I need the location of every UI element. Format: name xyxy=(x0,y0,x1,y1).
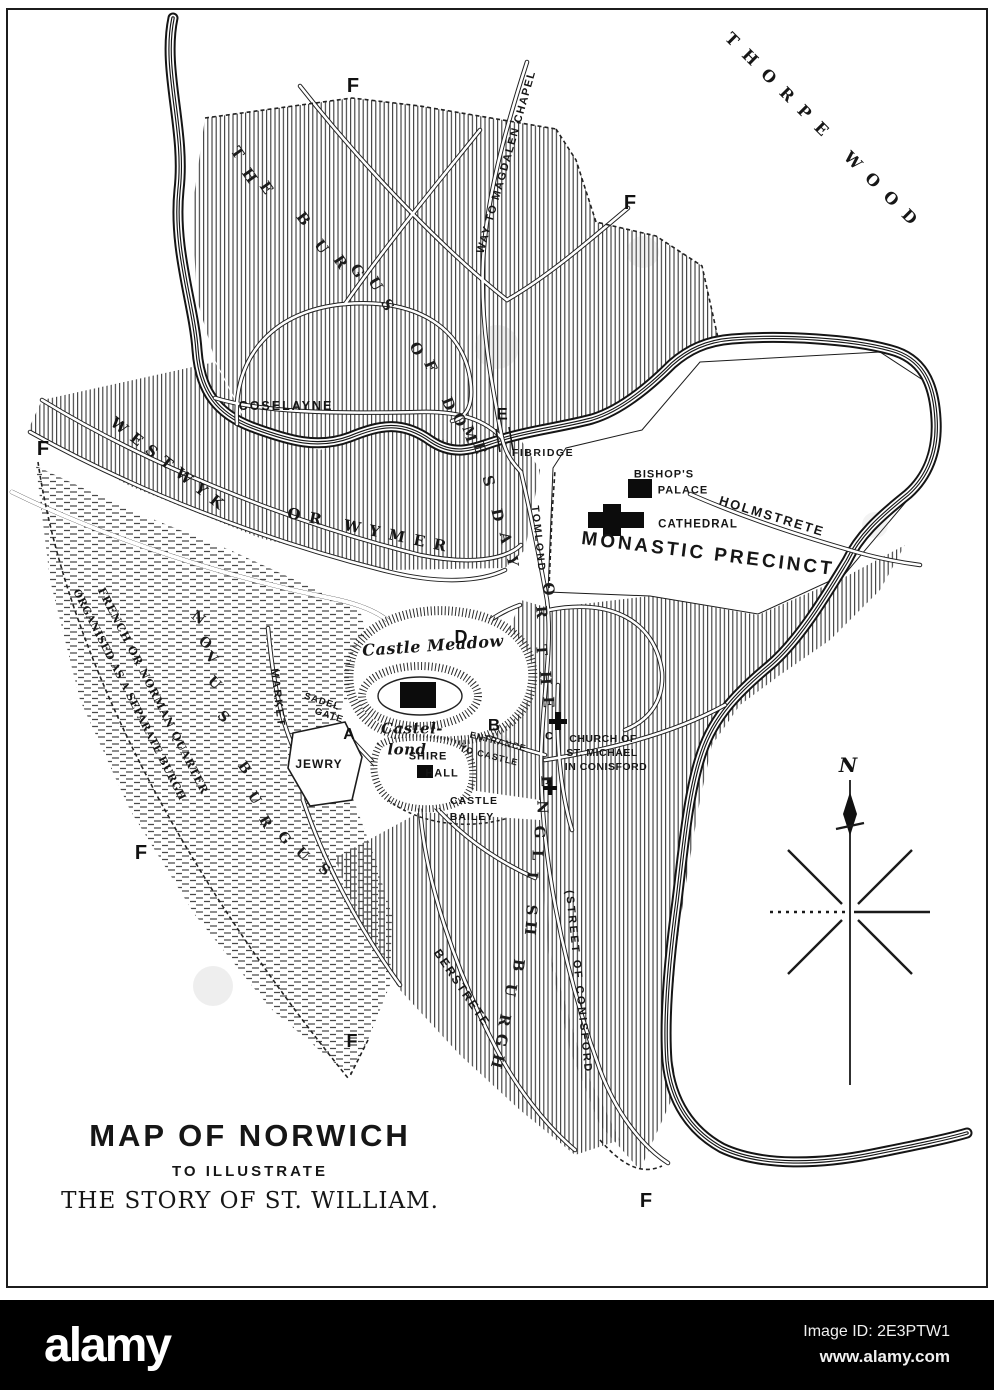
letter-burgus-1: T xyxy=(228,144,247,162)
label-marker-e-fibridge: E xyxy=(496,406,507,423)
alamy-logo: alamy xyxy=(44,1318,170,1373)
letter-novus-10: U xyxy=(293,845,312,864)
label-sadelgate-2: GATE xyxy=(313,707,344,725)
title-block: MAP OF NORWICH TO ILLUSTRATE THE STORY O… xyxy=(60,1118,440,1214)
label-marker-d-castle-meadow: D xyxy=(455,628,468,646)
letter-burgus-7: G xyxy=(347,262,367,281)
label-castel-lond-1: Castel- xyxy=(381,722,443,737)
letter-burgus-12: D xyxy=(439,395,458,413)
map-of-norwich: THORPE WOODWAY TO MAGDALEN CHAPELCOSELAY… xyxy=(0,0,994,1300)
watermark-info: Image ID: 2E3PTW1 www.alamy.com xyxy=(803,1323,950,1367)
letter-burgus-35: G xyxy=(492,1032,510,1048)
label-holmstrete: HOLMSTRETE xyxy=(718,494,827,538)
letter-burgus-8: U xyxy=(365,275,385,294)
label-shire-hall-1: SHIRE xyxy=(409,752,448,763)
letter-burgus-20: O xyxy=(540,582,556,597)
letter-burgus-27: G xyxy=(532,826,547,839)
label-fibridge: FIBRIDGE xyxy=(512,448,574,459)
label-marker-f-northwest: F xyxy=(347,76,359,96)
label-westwyk: WESTWYK xyxy=(108,415,233,517)
label-tomlond: TOMLOND xyxy=(529,505,546,573)
letter-burgus-31: H xyxy=(522,920,538,936)
label-marker-b-castle-entrance: B xyxy=(488,717,500,734)
letter-novus-8: R xyxy=(256,813,274,830)
letter-burgus-36: H xyxy=(488,1052,506,1070)
label-cathedral: CATHEDRAL xyxy=(658,519,738,531)
map-subtitle: TO ILLUSTRATE xyxy=(60,1163,440,1180)
label-bishops-palace-1: BISHOP'S xyxy=(634,470,694,481)
label-monastic-precinct: MONASTIC PRECINCT xyxy=(580,529,835,579)
letter-burgus-4: B xyxy=(293,209,313,228)
letter-burgus-2: H xyxy=(239,166,259,186)
letter-burgus-33: U xyxy=(501,982,518,997)
map-subtitle-2: THE STORY OF ST. WILLIAM. xyxy=(60,1188,440,1214)
letter-burgus-5: U xyxy=(311,237,331,256)
label-street-of-conisford: (STREET OF CONISFORD xyxy=(563,890,593,1075)
letter-burgus-18: A xyxy=(497,531,514,545)
label-market: MARKET xyxy=(268,668,286,728)
letter-burgus-10: O xyxy=(406,340,425,358)
letter-novus-6: B xyxy=(235,759,253,777)
letter-burgus-23: H xyxy=(537,671,553,686)
letter-burgus-19: Y xyxy=(504,555,520,568)
screenshot-canvas: THORPE WOODWAY TO MAGDALEN CHAPELCOSELAY… xyxy=(0,0,994,1390)
label-bishops-palace-2: PALACE xyxy=(658,486,708,497)
label-marker-f-west: F xyxy=(37,439,49,459)
letter-novus-5: S xyxy=(214,708,231,725)
label-marker-f-southeast: F xyxy=(640,1191,652,1211)
compass-north-label: N xyxy=(839,755,857,775)
label-church-st-michael-2: ST. MICHAEL xyxy=(566,748,637,759)
label-french-quarter-2: ORGANISED AS A SEPARATE BURGH xyxy=(71,588,187,803)
letter-burgus-29: I xyxy=(524,871,539,879)
letter-burgus-17: D xyxy=(488,507,505,523)
label-castle-meadow: Castle Meadow xyxy=(362,633,504,659)
letter-burgus-22: T xyxy=(533,644,549,656)
label-church-st-michael-1: CHURCH OF xyxy=(569,734,637,745)
label-way-to-magdalen-chapel: WAY TO MAGDALEN CHAPEL xyxy=(476,69,539,255)
watermark-bar: alamy Image ID: 2E3PTW1 www.alamy.com xyxy=(0,1300,994,1390)
labels-layer: THORPE WOODWAY TO MAGDALEN CHAPELCOSELAY… xyxy=(0,0,994,1300)
letter-burgus-11: F xyxy=(421,358,439,374)
label-marker-f-northeast: F xyxy=(624,193,636,213)
image-id-text: Image ID: 2E3PTW1 xyxy=(803,1323,950,1341)
letter-burgus-25: E xyxy=(538,775,553,787)
letter-burgus-21: R xyxy=(533,605,549,619)
label-coselayne: COSELAYNE xyxy=(239,400,334,413)
label-marker-c-church: C xyxy=(545,732,553,743)
label-marker-f-south: F xyxy=(347,1032,358,1050)
map-title: MAP OF NORWICH xyxy=(60,1118,440,1154)
letter-burgus-14: M xyxy=(459,424,478,444)
label-jewry: JEWRY xyxy=(295,758,342,770)
label-marker-a-sadelgate: A xyxy=(343,727,355,743)
letter-novus-1: N xyxy=(189,609,208,628)
letter-burgus-9: S xyxy=(378,297,396,314)
label-thorpe-wood: THORPE WOOD xyxy=(722,30,928,236)
letter-burgus-3: E xyxy=(257,179,276,197)
label-shire-hall-2: HALL xyxy=(425,769,458,780)
letter-burgus-32: B xyxy=(510,958,527,973)
alamy-url-text: www.alamy.com xyxy=(803,1347,950,1367)
label-marker-f-southwest: F xyxy=(135,843,147,863)
letter-burgus-34: R xyxy=(495,1012,512,1027)
letter-burgus-24: E xyxy=(540,696,555,708)
label-castle-bailey-1: CASTLE xyxy=(450,796,498,807)
label-berstrete: BERSTRETE xyxy=(432,947,493,1029)
letter-burgus-26: N xyxy=(534,800,549,814)
letter-burgus-30: S xyxy=(523,904,539,916)
letter-novus-11: S xyxy=(316,861,333,878)
label-church-st-michael-3: IN CONISFORD xyxy=(565,762,647,773)
letter-novus-4: U xyxy=(205,674,224,693)
letter-burgus-15: E xyxy=(470,440,488,455)
letter-novus-9: G xyxy=(275,829,293,847)
letter-novus-7: U xyxy=(245,789,263,807)
label-castle-bailey-2: BAILEY xyxy=(450,812,495,823)
letter-burgus-28: L xyxy=(529,850,544,861)
letter-burgus-16: S xyxy=(479,474,496,488)
label-or-wymer: OR WYMER xyxy=(286,506,456,556)
